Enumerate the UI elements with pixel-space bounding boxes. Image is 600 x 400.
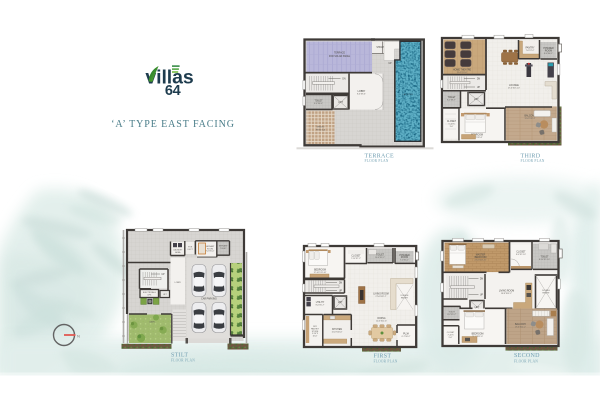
svg-text:UP: UP	[339, 290, 343, 292]
svg-text:TOILET: TOILET	[220, 248, 227, 250]
svg-text:27'-6"X22'-7": 27'-6"X22'-7"	[376, 296, 387, 298]
svg-text:12'-10"X11'-10": 12'-10"X11'-10"	[314, 272, 327, 274]
svg-text:N: N	[77, 333, 80, 338]
svg-text:PERGOLA: PERGOLA	[316, 129, 326, 132]
svg-text:‘A’ TYPE EAST FACING: ‘A’ TYPE EAST FACING	[111, 119, 235, 130]
svg-text:HEIGHT: HEIGHT	[542, 292, 550, 294]
svg-text:3'-6": 3'-6"	[450, 126, 454, 128]
svg-text:LIFT: LIFT	[338, 302, 343, 304]
svg-text:27'-6"X17'-10": 27'-6"X17'-10"	[508, 88, 520, 90]
svg-text:SHADED: SHADED	[317, 126, 326, 129]
svg-text:5'-6": 5'-6"	[449, 337, 453, 339]
svg-text:10'-6": 10'-6"	[313, 336, 318, 338]
svg-text:7'-0"X5'-2": 7'-0"X5'-2"	[400, 260, 409, 262]
svg-text:FLOOR PLAN: FLOOR PLAN	[521, 159, 545, 163]
svg-text:8'-2"X8'-7": 8'-2"X8'-7"	[447, 100, 456, 102]
svg-text:CAR PARKING: CAR PARKING	[201, 298, 217, 301]
svg-text:11'-6"X10'-6": 11'-6"X10'-6"	[332, 331, 343, 333]
svg-text:HEIGHT: HEIGHT	[401, 297, 409, 299]
svg-text:LAWN: LAWN	[149, 321, 155, 324]
svg-text:UP: UP	[477, 87, 481, 89]
svg-text:19'-6"X12'-2": 19'-6"X12'-2"	[515, 327, 526, 329]
svg-text:13'-6"X11'-6": 13'-6"X11'-6"	[457, 72, 468, 74]
svg-text:6'-7"X6'-2": 6'-7"X6'-2"	[402, 336, 411, 338]
svg-text:FLOOR PLAN: FLOOR PLAN	[514, 359, 538, 363]
svg-text:8'-10"X7'-10": 8'-10"X7'-10"	[539, 259, 550, 261]
svg-text:LIFT: LIFT	[474, 99, 479, 101]
svg-text:24'-6"X13'-10": 24'-6"X13'-10"	[475, 259, 487, 261]
svg-text:FLOOR PLAN: FLOOR PLAN	[171, 359, 195, 363]
svg-text:DN: DN	[477, 78, 481, 80]
svg-text:FLOOR PLAN: FLOOR PLAN	[374, 359, 398, 363]
svg-text:19'-6"X12'-2": 19'-6"X12'-2"	[525, 118, 536, 120]
svg-text:7'-6"X7'-2": 7'-6"X7'-2"	[526, 50, 535, 52]
svg-text:8'-0"X7'-10": 8'-0"X7'-10"	[516, 254, 526, 256]
svg-text:8'-0"X4'-2": 8'-0"X4'-2"	[544, 53, 553, 55]
svg-text:DN: DN	[339, 282, 343, 284]
svg-text:7'-0"X5'-0": 7'-0"X5'-0"	[206, 251, 215, 253]
svg-text:DN: DN	[480, 279, 484, 281]
svg-text:SECOND: SECOND	[514, 353, 540, 359]
svg-text:UP: UP	[480, 295, 484, 297]
svg-text:TERRACE: TERRACE	[334, 52, 345, 55]
svg-text:UP: UP	[161, 274, 165, 276]
svg-text:18'-8"X13'-2": 18'-8"X13'-2"	[501, 293, 512, 295]
svg-text:8'-0"X6'-0": 8'-0"X6'-0"	[314, 103, 323, 105]
svg-text:LIFT: LIFT	[338, 102, 343, 104]
svg-text:8'-2"X5'-7": 8'-2"X5'-7"	[447, 314, 456, 316]
svg-text:LOBBY: LOBBY	[175, 282, 182, 284]
svg-text:FLOOR PLAN: FLOOR PLAN	[365, 159, 389, 163]
svg-text:UP: UP	[388, 63, 392, 65]
svg-text:10'-6"X5'-2": 10'-6"X5'-2"	[375, 257, 385, 259]
svg-text:LAP POOL: LAP POOL	[403, 93, 415, 96]
svg-text:8'-6"X9'-6": 8'-6"X9'-6"	[357, 94, 366, 96]
svg-text:DUCT: DUCT	[188, 249, 194, 251]
svg-text:64: 64	[165, 83, 181, 99]
svg-text:7'-10"X7'-2": 7'-10"X7'-2"	[351, 258, 361, 260]
svg-text:AREA: AREA	[175, 251, 181, 254]
svg-text:FOR SOLAR PANEL: FOR SOLAR PANEL	[329, 55, 351, 58]
svg-text:10'-6"X12'-6": 10'-6"X12'-6"	[376, 320, 387, 322]
svg-text:DN: DN	[342, 78, 346, 80]
svg-text:8'-0"X5'-7": 8'-0"X5'-7"	[316, 304, 325, 306]
